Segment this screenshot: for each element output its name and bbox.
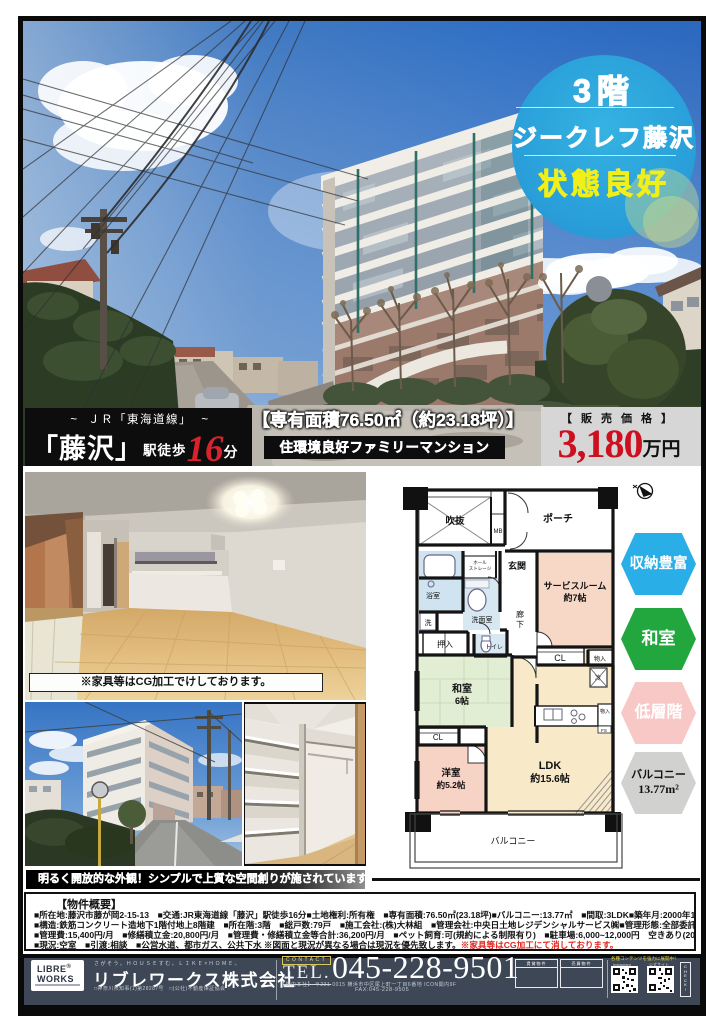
svg-text:洗: 洗 [425,618,432,627]
svg-text:冷: 冷 [595,674,601,682]
svg-text:ホール: ホール [473,560,487,565]
svg-text:約5.2帖: 約5.2帖 [437,780,466,790]
svg-text:MB: MB [494,529,503,535]
svg-text:玄関: 玄関 [508,560,526,571]
svg-text:サービスルーム: サービスルーム [544,580,607,591]
svg-text:浴室: 浴室 [426,591,440,600]
svg-text:LDK: LDK [539,760,562,772]
svg-text:ストレージ: ストレージ [469,566,492,571]
svg-text:約15.6帖: 約15.6帖 [530,772,569,785]
svg-text:バルコニー: バルコニー [491,836,536,846]
svg-text:洋室: 洋室 [441,767,461,779]
svg-text:物入: 物入 [594,655,606,663]
svg-text:廊: 廊 [516,609,524,619]
svg-text:物入: 物入 [600,708,610,715]
svg-text:押入: 押入 [437,639,453,649]
svg-text:CL: CL [433,733,444,742]
svg-text:6帖: 6帖 [455,695,469,706]
svg-text:ポーチ: ポーチ [543,512,573,525]
svg-text:FS: FS [601,728,607,733]
svg-text:トイレ: トイレ [485,645,503,651]
svg-text:和室: 和室 [451,682,472,695]
svg-text:下: 下 [516,620,524,629]
svg-text:約7帖: 約7帖 [563,592,586,603]
svg-text:CL: CL [554,653,566,663]
svg-text:洗面室: 洗面室 [472,615,493,624]
svg-text:吹抜: 吹抜 [445,515,465,527]
